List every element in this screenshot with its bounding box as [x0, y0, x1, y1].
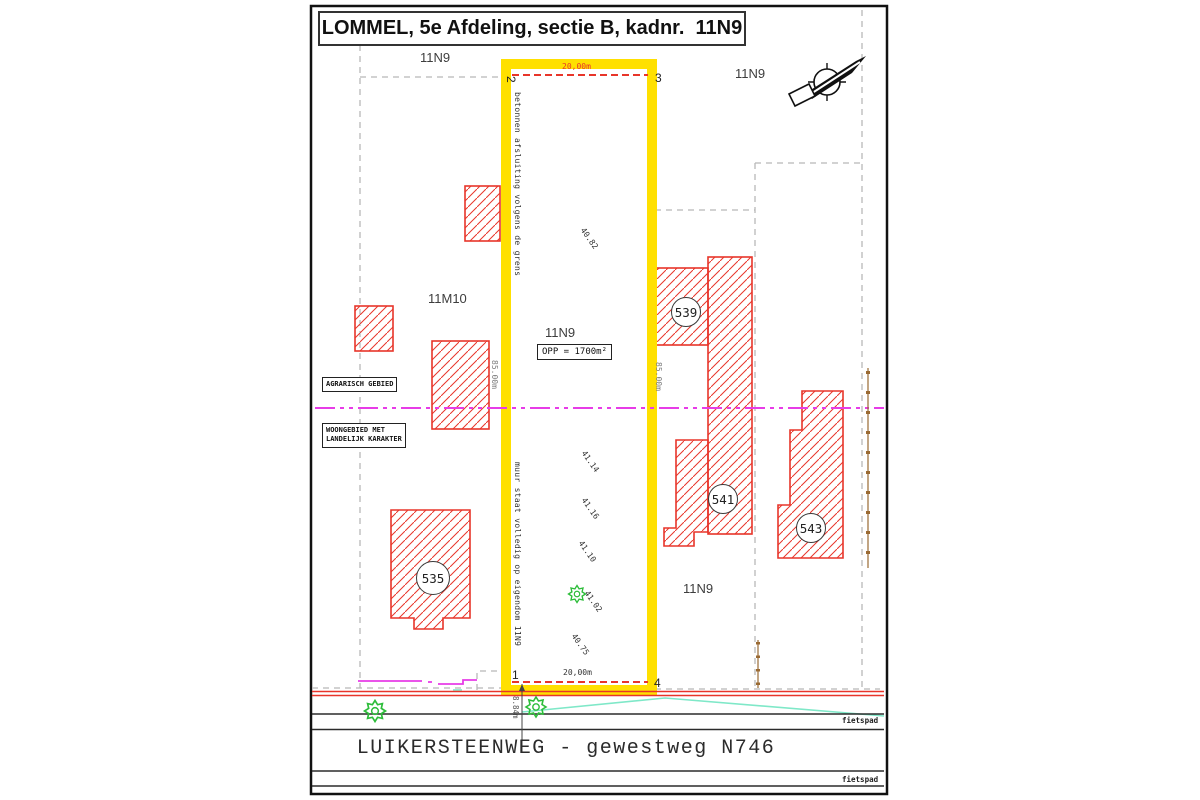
corner-point-1: 1 [512, 668, 519, 682]
parcel-label-11m10: 11M10 [428, 291, 467, 306]
building-small-west [355, 306, 393, 351]
plan-linework [0, 0, 1200, 800]
corner-point-3: 3 [655, 71, 662, 85]
map-frame [311, 6, 887, 794]
parcel-area-box: OPP = 1700m² [537, 344, 612, 360]
corner-point-4: 4 [654, 676, 661, 690]
dimension-depth-right: 85.00m [654, 362, 663, 391]
zone-label-woongebied-line1: WOONGEBIED MET [326, 426, 402, 435]
parcel-label-11n9-top-left: 11N9 [420, 50, 450, 65]
bike-path-label-bottom: fietspad [842, 775, 878, 784]
dimension-width-bottom: 20,00m [563, 668, 592, 677]
house-number-535: 535 [416, 561, 450, 595]
note-wall-ownership: muur staat volledig op eigendom 11N9 [513, 462, 522, 646]
zone-label-woongebied-line2: LANDELIJK KARAKTER [326, 435, 402, 444]
building-small-north [465, 186, 500, 241]
parcel-label-11n9-top-right: 11N9 [735, 66, 765, 81]
road-name-label: LUIKERSTEENWEG - gewestweg N746 [331, 737, 801, 760]
cadastral-plan: LOMMEL, 5e Afdeling, sectie B, kadnr. 11… [0, 0, 1200, 800]
dimension-depth-left: 85.00m [490, 360, 499, 389]
house-number-543: 543 [796, 513, 826, 543]
zone-label-woongebied: WOONGEBIED MET LANDELIJK KARAKTER [322, 423, 406, 448]
main-parcel-label: 11N9 [545, 325, 575, 340]
dimension-width-top: 20,00m [562, 62, 591, 71]
house-number-539: 539 [671, 297, 701, 327]
house-number-541: 541 [708, 484, 738, 514]
bike-path-label-top: fietspad [842, 716, 878, 725]
parcel-label-11n9-bottom-right: 11N9 [683, 581, 713, 596]
note-concrete-fence: betonnen afsluiting volgens de grens [513, 92, 522, 276]
dimension-road-offset: 8.84m [511, 696, 520, 719]
zone-label-agrarisch: AGRARISCH GEBIED [322, 377, 397, 392]
building-mid-west [432, 341, 489, 429]
corner-point-2: 2 [504, 76, 518, 83]
plan-title: LOMMEL, 5e Afdeling, sectie B, kadnr. 11… [318, 11, 746, 46]
